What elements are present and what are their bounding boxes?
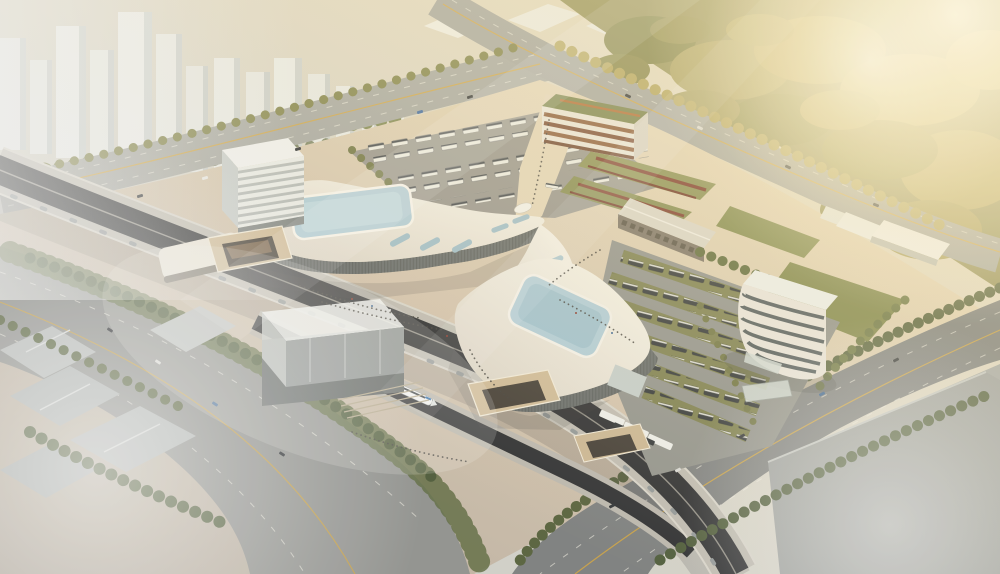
aerial-render [0,0,1000,574]
overall-haze [0,0,1000,574]
atmosphere-overlays [0,0,1000,574]
render-canvas [0,0,1000,574]
